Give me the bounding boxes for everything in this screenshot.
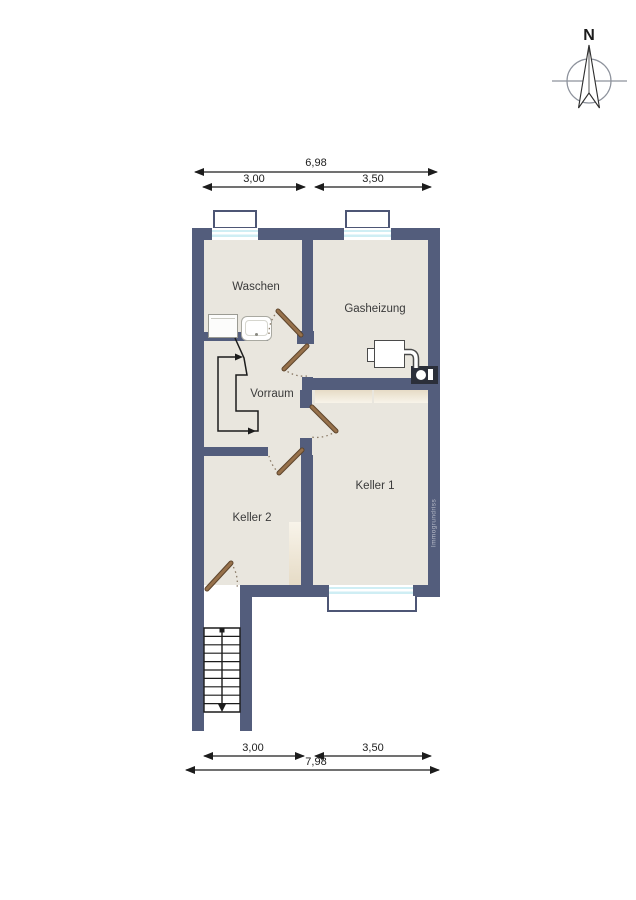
compass-rose-icon [552,45,627,108]
wall-exterior-bottom-left [240,585,330,597]
wall-exterior-left [192,228,204,731]
room-label-waschen: Waschen [232,281,280,293]
room-label-gasheizung: Gasheizung [344,303,405,315]
light-well-waschen [213,210,257,229]
room-label-keller1: Keller 1 [356,480,395,492]
wall-vorraum-keller1-upper [300,390,312,408]
floor-plan-page: N 6,98 3,00 3,50 3,00 3,50 7,98 Waschen … [0,0,636,900]
watermark-text: Immogrundriss [431,499,438,547]
wash-basin-icon [241,316,272,341]
washing-machine-icon [208,314,238,338]
exterior-stairs-icon [204,628,240,712]
dim-bottom-left: 3,00 [242,742,263,754]
light-well-keller1 [327,596,417,612]
shelf-keller1-right [374,390,428,403]
wall-gasheizung-keller1 [302,378,428,390]
flue-connection-box-icon [411,366,438,384]
wall-center-junction [297,331,314,344]
wall-vorraum-keller2 [204,447,268,456]
dim-top-total: 6,98 [305,157,326,169]
gas-heater-icon [374,340,405,368]
dim-bottom-total: 7,98 [305,756,326,768]
compass-north-label: N [583,27,595,45]
dim-bottom-right: 3,50 [362,742,383,754]
stairs-down-arrow [218,703,227,712]
gas-heater-knob [367,348,375,362]
wall-keller1-keller2 [301,455,313,597]
window-keller1 [329,585,413,597]
wall-waschen-gasheizung [302,240,313,344]
room-label-keller2: Keller 2 [233,512,272,524]
wall-vorraum-keller1-stub [300,438,312,455]
window-gasheizung [344,228,391,240]
wall-stairwell-right [240,597,252,731]
window-waschen [212,228,258,240]
light-well-gasheizung [345,210,390,229]
room-label-vorraum: Vorraum [250,388,293,400]
dim-top-right: 3,50 [362,173,383,185]
dim-top-left: 3,00 [243,173,264,185]
shelf-keller1-left [315,390,372,403]
